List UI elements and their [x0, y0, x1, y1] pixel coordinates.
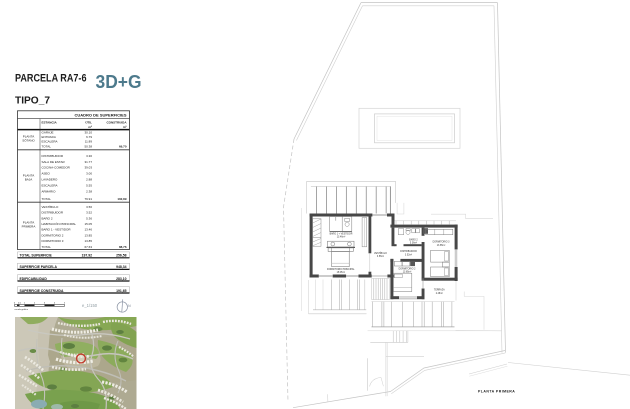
svg-text:13.46m²: 13.46m² — [337, 236, 346, 239]
svg-text:283,10: 283,10 — [116, 277, 126, 281]
svg-text:COCINA-COMEDOR: COCINA-COMEDOR — [42, 166, 71, 170]
svg-text:CONSTRUIDA: CONSTRUIDA — [107, 120, 128, 124]
svg-text:3.30: 3.30 — [86, 154, 92, 158]
svg-text:VESTÍBULO: VESTÍBULO — [42, 205, 60, 209]
svg-text:SUPERFICIE CONSTRUIDA: SUPERFICIE CONSTRUIDA — [20, 289, 64, 293]
svg-text:13.85m²: 13.85m² — [437, 244, 446, 247]
svg-text:DORMITORIO PRINCIPAL: DORMITORIO PRINCIPAL — [327, 268, 355, 271]
svg-text:88,76: 88,76 — [119, 245, 127, 249]
svg-text:BAÑO 1 - VESTIDOR: BAÑO 1 - VESTIDOR — [42, 227, 72, 232]
svg-text:ENTRADA: ENTRADA — [42, 135, 56, 139]
svg-text:256,58: 256,58 — [116, 254, 126, 258]
svg-text:ARMARIO: ARMARIO — [42, 189, 57, 193]
svg-text:6.79: 6.79 — [86, 135, 92, 139]
svg-text:DISTRIBUIDOR: DISTRIBUIDOR — [42, 154, 64, 158]
svg-text:2.48m²: 2.48m² — [436, 292, 443, 295]
svg-text:69,70: 69,70 — [119, 145, 127, 149]
svg-text:13.85: 13.85 — [84, 239, 92, 243]
svg-text:3.52m²: 3.52m² — [405, 253, 412, 256]
svg-text:HABITACIÓN PRINCIPAL: HABITACIÓN PRINCIPAL — [42, 221, 77, 226]
svg-text:5.36: 5.36 — [86, 216, 92, 220]
svg-text:TIPO_7: TIPO_7 — [15, 96, 50, 107]
svg-text:BAÑO 2: BAÑO 2 — [42, 215, 53, 220]
svg-text:SALA DE ESTAR: SALA DE ESTAR — [42, 160, 66, 164]
svg-text:PARCELA RA7-6: PARCELA RA7-6 — [15, 73, 87, 85]
svg-text:DISTRIBUIDOR: DISTRIBUIDOR — [42, 211, 64, 215]
svg-text:ESCALERA: ESCALERA — [42, 183, 58, 187]
svg-text:PLANTA PRIMERA: PLANTA PRIMERA — [478, 390, 515, 394]
svg-text:197.92: 197.92 — [82, 254, 92, 258]
svg-text:DORMITORIO 3: DORMITORIO 3 — [42, 239, 64, 243]
svg-text:67.63: 67.63 — [84, 245, 92, 249]
svg-text:3.00: 3.00 — [86, 172, 92, 176]
svg-text:BAÑO 2: BAÑO 2 — [409, 239, 418, 242]
svg-text:102,89: 102,89 — [117, 197, 127, 201]
svg-text:5.55: 5.55 — [86, 183, 92, 187]
svg-text:11.89: 11.89 — [85, 140, 93, 144]
svg-text:5.36m²: 5.36m² — [410, 242, 417, 245]
svg-text:TOTAL SUPERFICIE: TOTAL SUPERFICIE — [20, 254, 53, 258]
svg-text:SÓTANO: SÓTANO — [22, 138, 35, 143]
svg-text:50.38: 50.38 — [84, 145, 92, 149]
svg-text:191,65: 191,65 — [116, 289, 126, 293]
svg-text:3.56m²: 3.56m² — [377, 255, 384, 258]
svg-text:3D+G: 3D+G — [96, 72, 142, 92]
svg-text:3.52: 3.52 — [86, 211, 92, 215]
svg-text:ESCALERA: ESCALERA — [42, 140, 58, 144]
svg-text:BAJA: BAJA — [25, 178, 33, 182]
svg-text:DISTRIBUIDOR: DISTRIBUIDOR — [400, 251, 417, 253]
svg-text:ASEO: ASEO — [42, 172, 51, 176]
svg-text:13.46: 13.46 — [84, 228, 92, 232]
svg-text:15.05: 15.05 — [84, 222, 92, 226]
svg-text:VESTÍBULO: VESTÍBULO — [374, 252, 387, 255]
svg-text:3.56: 3.56 — [86, 205, 92, 209]
svg-text:CUADRO DE SUPERFICIES: CUADRO DE SUPERFICIES — [74, 113, 126, 118]
svg-text:ÚTIL: ÚTIL — [85, 119, 92, 124]
svg-text:EDIFICABILIDAD: EDIFICABILIDAD — [20, 277, 48, 281]
svg-text:948,34: 948,34 — [116, 265, 126, 269]
svg-text:SUPERFICIE PARCELA: SUPERFICIE PARCELA — [20, 265, 58, 269]
svg-text:13.85: 13.85 — [84, 233, 92, 237]
svg-text:DORMITORIO 2: DORMITORIO 2 — [42, 233, 64, 237]
svg-text:39.03: 39.03 — [84, 166, 92, 170]
svg-text:TERRAZA: TERRAZA — [434, 289, 445, 292]
svg-text:ESTANCIA: ESTANCIA — [42, 120, 58, 124]
svg-text:15.05m²: 15.05m² — [337, 271, 346, 274]
svg-text:GARAJE: GARAJE — [42, 130, 54, 134]
svg-text:2.88: 2.88 — [86, 178, 92, 182]
svg-text:TOTAL: TOTAL — [42, 245, 52, 249]
svg-text:m²: m² — [88, 125, 92, 129]
svg-text:e_1/150: e_1/150 — [82, 303, 98, 308]
svg-text:DORMITORIO 2: DORMITORIO 2 — [399, 268, 417, 270]
svg-text:m²: m² — [123, 125, 127, 129]
svg-text:BAÑO 1 + VESTIDOR: BAÑO 1 + VESTIDOR — [330, 233, 353, 236]
svg-text:LAVADERO: LAVADERO — [42, 178, 59, 182]
svg-text:PRIMERA: PRIMERA — [22, 225, 36, 229]
svg-text:2.38: 2.38 — [86, 189, 92, 193]
svg-text:TOTAL: TOTAL — [42, 197, 52, 201]
svg-text:TOTAL: TOTAL — [42, 145, 52, 149]
svg-text:30.10: 30.10 — [84, 130, 92, 134]
svg-text:79.91: 79.91 — [84, 197, 92, 201]
svg-text:DORMITORIO 3: DORMITORIO 3 — [433, 242, 451, 244]
svg-text:escala gráfica: escala gráfica — [15, 308, 29, 311]
svg-text:31.77: 31.77 — [84, 160, 92, 164]
